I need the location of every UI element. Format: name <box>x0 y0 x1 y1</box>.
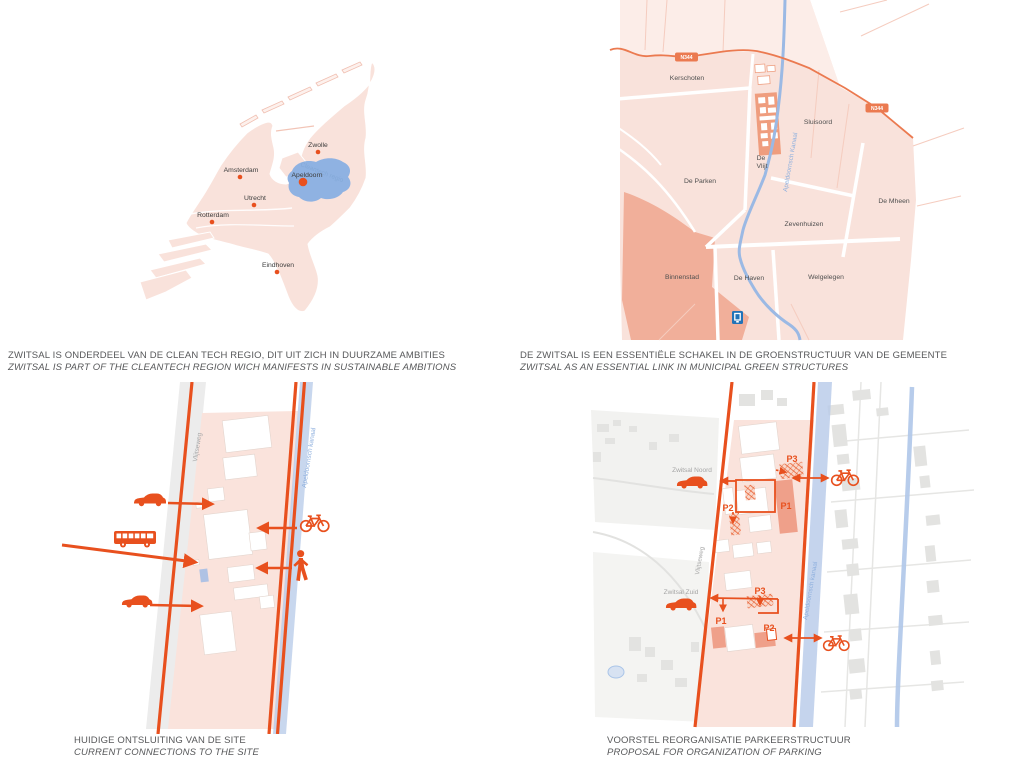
city-label-utrecht: Utrecht <box>244 195 266 202</box>
p1-south-label: P1 <box>715 616 726 626</box>
car-icon <box>122 595 152 607</box>
p3-north-label: P3 <box>786 454 797 464</box>
caption-cleantech-en: ZWITSAL IS PART OF THE CLEANTECH REGION … <box>8 362 456 374</box>
caption-parking-en: PROPOSAL FOR ORGANIZATION OF PARKING <box>607 747 851 759</box>
p1-north-label: P1 <box>780 501 791 511</box>
district-label-welgelegen: Welgelegen <box>808 274 844 281</box>
n344-badge: N344 <box>675 53 698 62</box>
poster-canvas: Cleantech regio Zwolle Amsterdam Apeldoo… <box>0 0 1018 764</box>
caption-cleantech: ZWITSAL IS ONDERDEEL VAN DE CLEAN TECH R… <box>8 350 456 373</box>
caption-connections-en: CURRENT CONNECTIONS TO THE SITE <box>74 747 259 759</box>
east-canal <box>897 387 912 727</box>
district-label-de-vlijt-1: De <box>757 155 766 162</box>
pond <box>608 666 624 678</box>
p3-north-area <box>779 462 803 479</box>
n344-badge-2: N344 <box>866 104 889 113</box>
caption-connections-nl: HUIDIGE ONTSLUITING VAN DE SITE <box>74 735 259 747</box>
bus-icon <box>114 531 156 548</box>
parking-proposal-map: Vlijtseweg Apeldoornsch kanaal Zwitsal N… <box>509 382 1018 734</box>
caption-green-en: ZWITSAL AS AN ESSENTIAL LINK IN MUNICIPA… <box>520 362 947 374</box>
n344-badge-label: N344 <box>681 55 693 61</box>
caption-green: DE ZWITSAL IS EEN ESSENTIËLE SCHAKEL IN … <box>520 350 947 373</box>
city-label-apeldoorn: Apeldoorn <box>292 172 323 179</box>
p2-north-area-a <box>744 485 756 501</box>
railway-station-icon <box>732 311 743 324</box>
caption-green-nl: DE ZWITSAL IS EEN ESSENTIËLE SCHAKEL IN … <box>520 350 947 362</box>
p2-north-label: P2 <box>722 503 733 513</box>
district-label-kerschoten: Kerschoten <box>670 75 705 82</box>
car-icon <box>134 494 166 507</box>
connections-map: Vlijtseweg Apeldoornsch kanaal <box>0 382 509 734</box>
district-label-de-vlijt-2: Vlijt <box>757 163 768 170</box>
zeeland-islands <box>140 232 214 300</box>
netherlands-cleantech-map: Cleantech regio Zwolle Amsterdam Apeldoo… <box>0 0 509 345</box>
district-label-zevenhuizen: Zevenhuizen <box>785 221 824 228</box>
bicycle-icon <box>824 636 849 650</box>
apeldoorn-dot <box>299 178 308 187</box>
blue-building <box>199 569 209 583</box>
district-label-binnenstad: Binnenstad <box>665 274 699 281</box>
city-label-eindhoven: Eindhoven <box>262 262 294 269</box>
district-green-structure-map: Apeldoornsch Kanaal N344 N344 Kerschoten… <box>509 0 1018 345</box>
district-base <box>620 0 916 340</box>
caption-parking-nl: VOORSTEL REORGANISATIE PARKEERSTRUCTUUR <box>607 735 851 747</box>
caption-connections: HUIDIGE ONTSLUITING VAN DE SITE CURRENT … <box>74 735 259 758</box>
district-label-sluisoord: Sluisoord <box>804 119 833 126</box>
zwitsal-noord-label: Zwitsal Noord <box>672 467 712 474</box>
p1-south-area <box>711 626 726 648</box>
caption-parking: VOORSTEL REORGANISATIE PARKEERSTRUCTUUR … <box>607 735 851 758</box>
district-label-de-parken: De Parken <box>684 178 716 185</box>
city-label-zwolle: Zwolle <box>308 142 328 149</box>
p2-south-label: P2 <box>763 623 774 633</box>
district-label-de-mheen: De Mheen <box>878 198 910 205</box>
district-label-de-haven: De Haven <box>734 275 764 282</box>
p3-south-label: P3 <box>754 586 765 596</box>
city-label-amsterdam: Amsterdam <box>224 167 259 174</box>
zwitsal-zuid-label: Zwitsal Zuid <box>664 589 699 596</box>
city-label-rotterdam: Rotterdam <box>197 212 229 219</box>
n344-badge-2-label: N344 <box>871 106 883 112</box>
bicycle-icon <box>301 515 329 531</box>
caption-cleantech-nl: ZWITSAL IS ONDERDEEL VAN DE CLEAN TECH R… <box>8 350 456 362</box>
